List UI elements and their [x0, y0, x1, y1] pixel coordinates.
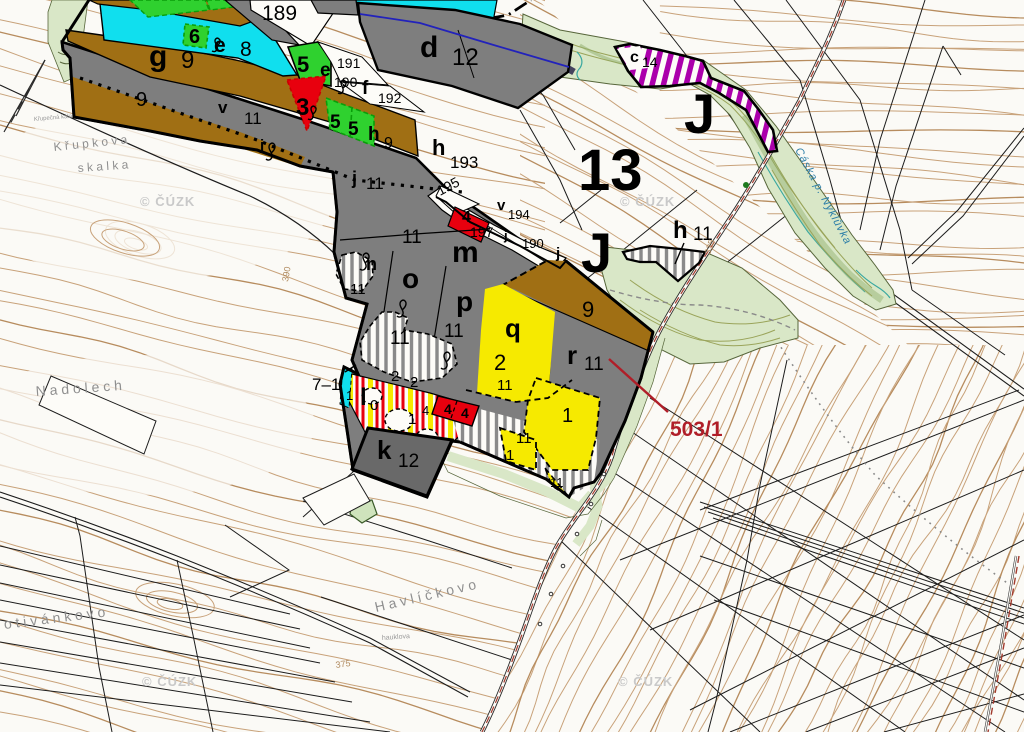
svg-text:4: 4: [444, 401, 452, 417]
svg-text:h: h: [432, 135, 445, 160]
svg-text:14: 14: [642, 54, 658, 70]
svg-text:190: 190: [522, 236, 544, 251]
svg-text:1: 1: [562, 405, 573, 427]
svg-text:© ČÚZK: © ČÚZK: [140, 194, 195, 209]
svg-text:j: j: [351, 168, 357, 188]
svg-text:2: 2: [391, 368, 399, 385]
svg-text:d: d: [420, 31, 438, 64]
svg-text:12: 12: [398, 451, 419, 472]
svg-text:e: e: [320, 60, 331, 81]
svg-text:h: h: [673, 217, 688, 244]
svg-text:1: 1: [506, 447, 514, 464]
svg-text:m: m: [452, 236, 479, 269]
svg-text:6: 6: [189, 26, 200, 48]
svg-text:3: 3: [296, 94, 309, 121]
svg-text:v: v: [218, 98, 228, 117]
svg-text:191: 191: [337, 55, 361, 71]
svg-text:v: v: [497, 197, 506, 214]
svg-text:11: 11: [402, 227, 422, 248]
svg-text:5: 5: [297, 52, 309, 77]
svg-text:k: k: [377, 435, 392, 465]
svg-text:503/1: 503/1: [670, 418, 723, 441]
svg-text:q: q: [505, 313, 521, 343]
svg-text:4: 4: [422, 403, 429, 418]
svg-text:193: 193: [450, 153, 478, 172]
svg-text:h: h: [368, 124, 380, 145]
svg-text:l: l: [360, 384, 367, 411]
svg-text:190: 190: [334, 74, 358, 90]
svg-text:11: 11: [350, 281, 366, 298]
svg-text:c: c: [630, 49, 639, 66]
svg-text:192: 192: [378, 90, 402, 106]
svg-text:1: 1: [408, 411, 416, 428]
svg-text:11: 11: [366, 174, 384, 193]
svg-text:j: j: [555, 245, 560, 262]
svg-text:g: g: [149, 40, 167, 73]
svg-text:2: 2: [410, 374, 418, 391]
svg-text:J: J: [684, 82, 715, 145]
svg-text:j: j: [259, 137, 264, 154]
svg-text:o: o: [402, 263, 419, 294]
svg-text:11: 11: [584, 354, 604, 375]
svg-text:11: 11: [497, 377, 513, 394]
svg-text:5: 5: [348, 119, 359, 140]
svg-text:n: n: [366, 254, 377, 274]
svg-text:9: 9: [136, 89, 147, 111]
svg-text:e: e: [214, 34, 226, 57]
svg-text:© ČÚZK: © ČÚZK: [620, 194, 675, 209]
svg-text:p: p: [456, 286, 473, 317]
svg-text:1: 1: [346, 388, 353, 403]
svg-text:11: 11: [390, 328, 410, 349]
svg-text:4: 4: [461, 405, 469, 421]
svg-text:12: 12: [452, 44, 479, 71]
svg-text:189: 189: [262, 2, 297, 25]
svg-text:194: 194: [508, 207, 530, 222]
svg-text:11: 11: [550, 475, 564, 490]
svg-text:r: r: [567, 340, 577, 370]
svg-text:0: 0: [370, 397, 378, 414]
svg-text:11: 11: [444, 321, 464, 342]
svg-text:8: 8: [240, 38, 252, 61]
svg-text:j: j: [503, 228, 508, 243]
svg-text:© ČÚZK: © ČÚZK: [618, 674, 673, 689]
svg-text:7–1: 7–1: [312, 375, 340, 394]
svg-text:9: 9: [384, 135, 393, 152]
svg-text:375: 375: [335, 658, 351, 670]
svg-text:9: 9: [181, 47, 194, 74]
svg-text:9: 9: [582, 297, 594, 322]
svg-text:f: f: [362, 78, 369, 99]
svg-text:11: 11: [516, 430, 532, 447]
svg-text:11: 11: [244, 109, 262, 128]
svg-text:© ČÚZK: © ČÚZK: [142, 674, 197, 689]
svg-text:2: 2: [494, 350, 506, 375]
svg-text:J: J: [581, 221, 612, 284]
svg-text:5: 5: [330, 112, 341, 133]
